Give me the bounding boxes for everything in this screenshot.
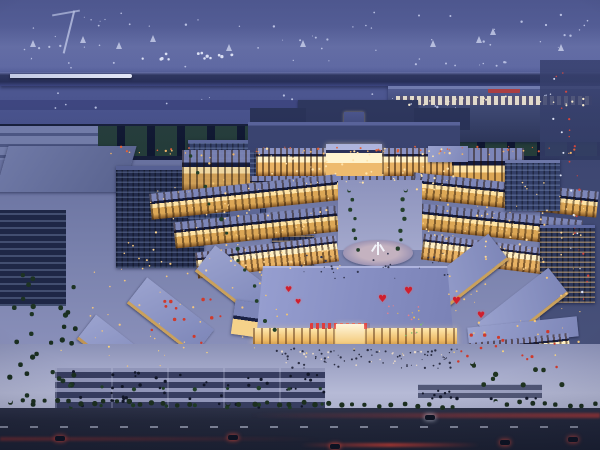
aerial-night-rendering: ♥♥♥♥♥♥: [0, 0, 600, 450]
heart-balloon-icon: ♥: [452, 297, 461, 307]
heart-balloon-icon: ♥: [477, 312, 485, 321]
heart-balloons-layer: ♥♥♥♥♥♥: [0, 0, 600, 450]
heart-balloon-icon: ♥: [378, 295, 387, 305]
heart-balloon-icon: ♥: [295, 299, 301, 306]
heart-balloon-icon: ♥: [404, 287, 413, 297]
heart-balloon-icon: ♥: [285, 286, 292, 294]
